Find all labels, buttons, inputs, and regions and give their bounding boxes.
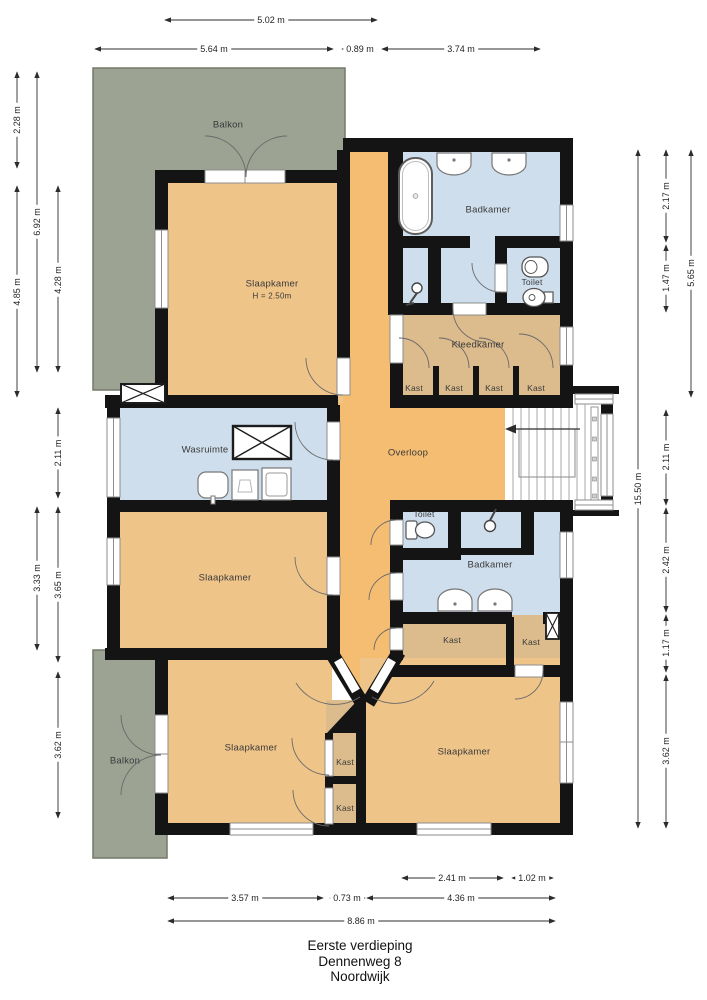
room-sublabel-slaapkamer-top-height: H = 2.50m <box>253 292 292 301</box>
plan-title-line-1: Eerste verdieping <box>307 938 412 954</box>
window-bedroom-br-south <box>417 823 491 835</box>
room-label-kast-top-1: Kast <box>405 383 423 393</box>
room-label-balkon-top: Balkon <box>213 120 243 131</box>
door-leaf-bedroom-mid <box>327 557 340 595</box>
dim-label-left-3: 4.28 m <box>53 263 63 297</box>
dim-label-bottom-1: 1.02 m <box>515 873 549 883</box>
room-label-slaapkamer-top: Slaapkamer <box>246 279 299 290</box>
door-leaf-kleedkamer <box>453 303 486 315</box>
room-label-toilet-top: Toilet <box>521 277 542 287</box>
window-top-bedroom-west <box>155 230 168 308</box>
room-label-kleedkamer: Kleedkamer <box>452 340 505 351</box>
dim-label-right-3: 15.50 m <box>633 470 643 509</box>
dim-label-left-2: 4.85 m <box>12 275 22 309</box>
dim-label-bottom-4: 4.36 m <box>444 893 478 903</box>
floor-plan-canvas: Balkon Slaapkamer H = 2.50m Badkamer Toi… <box>0 0 707 1000</box>
room-label-kast-center-2: Kast <box>336 803 354 813</box>
plan-title-line-3: Noordwijk <box>307 969 412 985</box>
dim-label-top-0: 5.02 m <box>254 15 288 25</box>
room-label-kast-mid-left: Kast <box>443 635 461 645</box>
dim-label-right-4: 2.11 m <box>661 441 671 474</box>
room-label-kast-mid-right: Kast <box>522 637 540 647</box>
door-leaf-badkamer-mid <box>390 573 403 600</box>
door-leaf-toilet-mid <box>390 520 403 545</box>
plan-title: Eerste verdieping Dennenweg 8 Noordwijk <box>307 938 412 985</box>
shaft-icon-wasruimte <box>233 426 291 459</box>
shaft-icon-top-bedroom <box>121 384 165 403</box>
shaft-icon-kast-mid <box>546 613 559 639</box>
window-staircase-bay-bottom <box>575 500 613 510</box>
door-leaf-toilet-top <box>495 264 507 292</box>
stair-railing <box>591 407 598 505</box>
room-label-kast-top-3: Kast <box>485 383 503 393</box>
room-label-badkamer-mid: Badkamer <box>468 560 513 571</box>
passage-kleedkamer <box>390 315 403 363</box>
washer-icon-1 <box>232 470 258 500</box>
dim-label-top-3: 3.74 m <box>444 44 478 54</box>
window-badkamer-mid-east <box>560 532 573 578</box>
room-label-overloop: Overloop <box>388 448 428 459</box>
door-leaf-bedroom-top <box>337 358 350 395</box>
window-bedroom-mid-west <box>107 538 120 585</box>
dim-label-left-4: 2.11 m <box>53 437 63 470</box>
room-label-badkamer-top: Badkamer <box>466 205 511 216</box>
window-bedroom-br-east <box>560 702 573 783</box>
toilet-icon-mid <box>406 521 435 539</box>
room-label-kast-top-4: Kast <box>527 383 545 393</box>
door-leaf-kast-mid-right <box>515 665 543 677</box>
dim-label-left-6: 3.65 m <box>53 568 63 602</box>
dim-label-left-1: 6.92 m <box>32 205 42 239</box>
toilet-icon-top <box>522 257 548 277</box>
room-label-kast-top-2: Kast <box>445 383 463 393</box>
washer-icon-2 <box>262 468 291 500</box>
dim-label-right-1: 5.65 m <box>686 256 696 290</box>
room-label-slaapkamer-bottom-right: Slaapkamer <box>438 747 491 758</box>
dim-label-left-0: 2.28 m <box>12 103 22 137</box>
window-staircase-bay-top <box>575 394 613 404</box>
window-kleedkamer-east <box>560 327 573 365</box>
floor-plan-svg <box>0 0 707 1000</box>
door-leaf-kast-center-1 <box>325 740 333 776</box>
plan-title-line-2: Dennenweg 8 <box>307 954 412 970</box>
dim-label-right-6: 1.17 m <box>661 626 671 660</box>
dim-label-bottom-3: 0.73 m <box>330 893 364 903</box>
dim-label-right-2: 1.47 m <box>661 261 671 295</box>
dim-label-right-5: 2.42 m <box>661 543 671 577</box>
dim-label-top-1: 5.64 m <box>197 44 231 54</box>
dim-label-left-7: 3.62 m <box>53 728 63 762</box>
door-leaf-wasruimte <box>327 422 340 460</box>
room-label-wasruimte: Wasruimte <box>182 445 229 456</box>
bathtub-icon <box>399 158 432 234</box>
dim-label-bottom-5: 8.86 m <box>344 916 378 926</box>
dim-label-top-2: 0.89 m <box>343 44 377 54</box>
dim-label-left-5: 3.33 m <box>32 561 42 595</box>
room-label-slaapkamer-bottom-left: Slaapkamer <box>225 743 278 754</box>
staircase <box>505 403 598 507</box>
door-leaf-kast-mid <box>390 628 403 650</box>
room-label-kast-center-1: Kast <box>336 757 354 767</box>
room-label-slaapkamer-mid: Slaapkamer <box>199 573 252 584</box>
dim-label-bottom-0: 2.41 m <box>435 873 469 883</box>
door-leaf-kast-center-2 <box>325 788 333 824</box>
window-badkamer-top-east <box>560 205 573 241</box>
dim-label-bottom-2: 3.57 m <box>228 893 262 903</box>
window-bedroom-bl-south <box>230 823 313 835</box>
dim-label-right-0: 2.17 m <box>661 179 671 213</box>
room-label-balkon-bottom: Balkon <box>110 756 140 767</box>
room-label-toilet-mid: Toilet <box>413 509 434 519</box>
window-wasruimte-west <box>107 418 120 497</box>
window-staircase-bay-east <box>601 414 613 496</box>
dim-label-right-7: 3.62 m <box>661 734 671 768</box>
